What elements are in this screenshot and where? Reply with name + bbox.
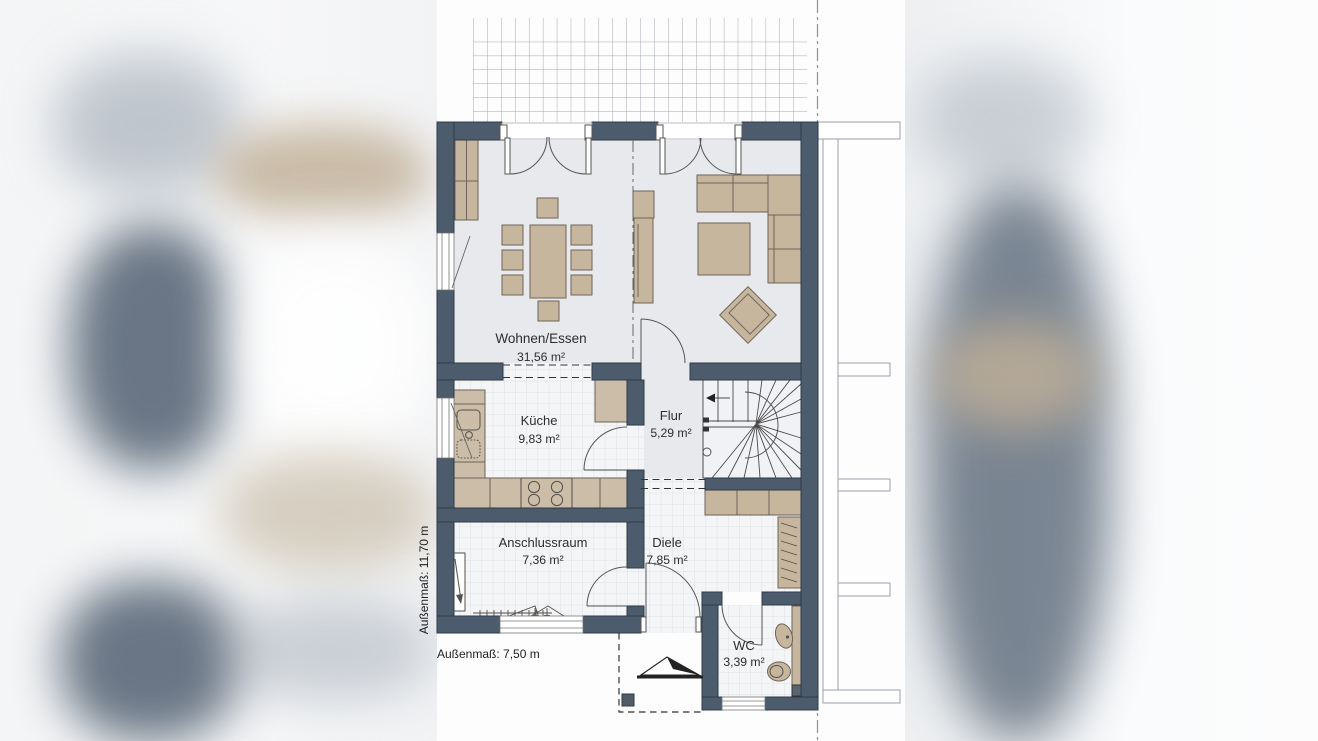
label-kueche-area: 9,83 m²: [518, 432, 559, 446]
kitchen-sink: [452, 404, 485, 462]
dimension-label-width: Außenmaß: 7,50 m: [437, 647, 540, 661]
floorplan-image: Wohnen/Essen 31,56 m² Küche 9,83 m² Flur…: [0, 0, 1318, 741]
label-kueche-name: Küche: [521, 413, 558, 428]
terrace-grid: [473, 18, 807, 122]
staircase: [703, 380, 801, 478]
dining-table: [530, 225, 566, 298]
dimension-label-height: Außenmaß: 11,70 m: [417, 526, 431, 635]
floorplan-drawing: Wohnen/Essen 31,56 m² Küche 9,83 m² Flur…: [0, 0, 1318, 741]
window-anschlussraum: [500, 616, 583, 633]
label-anschlussraum-area: 7,36 m²: [522, 553, 563, 567]
label-wc-area: 3,39 m²: [723, 655, 764, 669]
label-flur-area: 5,29 m²: [650, 426, 691, 440]
wc-toilet: [768, 662, 791, 681]
wardrobe: [778, 517, 801, 588]
label-diele-area: 7,85 m²: [646, 553, 687, 567]
label-flur-name: Flur: [660, 408, 683, 423]
wc-counter: [792, 606, 801, 686]
label-wc-name: WC: [733, 638, 755, 653]
tall-cabinet: [595, 375, 627, 422]
window-wc: [722, 697, 765, 710]
floor-wc: [718, 605, 792, 697]
label-anschlussraum-name: Anschlussraum: [499, 535, 588, 550]
coffee-table: [698, 223, 750, 275]
understair-storage: [705, 490, 801, 515]
porch-post: [622, 694, 634, 706]
label-wohnen-essen-name: Wohnen/Essen: [495, 331, 586, 346]
sideboard: [455, 140, 478, 220]
tv-lowboard: [633, 191, 654, 303]
label-wohnen-essen-area: 31,56 m²: [517, 350, 565, 364]
label-diele-name: Diele: [652, 535, 682, 550]
